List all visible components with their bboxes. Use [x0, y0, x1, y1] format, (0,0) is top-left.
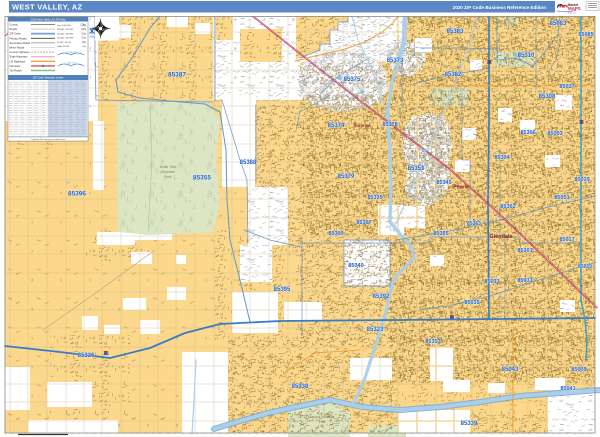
svg-text:Interstate: Interstate	[10, 64, 21, 68]
svg-text:85351: 85351	[408, 166, 425, 172]
svg-text:85017: 85017	[559, 237, 574, 243]
svg-text:County: County	[10, 23, 19, 27]
svg-text:* Indicates ZIP Code spans mul: * Indicates ZIP Code spans multiple area…	[30, 138, 65, 141]
svg-text:85019: 85019	[578, 264, 592, 270]
svg-text:100,000 - 249,999: 100,000 - 249,999	[57, 38, 74, 40]
svg-text:Roads: Roads	[10, 27, 18, 31]
svg-text:85053: 85053	[547, 131, 562, 137]
svg-text:85306: 85306	[520, 130, 535, 136]
svg-text:WEST VALLEY, AZ: WEST VALLEY, AZ	[12, 3, 82, 12]
svg-text:85387: 85387	[168, 71, 186, 78]
svg-text:85340: 85340	[348, 263, 363, 269]
svg-text:City: City	[82, 36, 87, 40]
svg-text:Toll Roads: Toll Roads	[10, 69, 23, 73]
svg-text:Mountain: Mountain	[161, 170, 175, 174]
svg-text:85375: 85375	[344, 77, 361, 83]
svg-text:85345: 85345	[436, 180, 451, 186]
svg-text:ZIP Code: ZIP Code	[10, 32, 21, 36]
svg-text:250,000 - 499,999: 250,000 - 499,999	[57, 33, 74, 35]
svg-text:maps.com: maps.com	[568, 13, 576, 15]
svg-text:85043: 85043	[502, 367, 519, 373]
svg-text:US Highways: US Highways	[10, 59, 26, 63]
svg-text:85323: 85323	[367, 327, 384, 333]
svg-text:85383: 85383	[447, 29, 464, 35]
svg-text:State Line: State Line	[66, 62, 76, 65]
svg-text:85382: 85382	[445, 72, 462, 78]
svg-text:County Line: County Line	[66, 51, 78, 54]
svg-text:85373: 85373	[387, 58, 404, 64]
svg-text:85339: 85339	[461, 421, 478, 427]
svg-text:Glendale: Glendale	[489, 234, 512, 240]
svg-text:Surprise: Surprise	[354, 123, 372, 128]
svg-text:85353: 85353	[425, 339, 440, 345]
svg-text:85304: 85304	[494, 155, 510, 161]
svg-text:85009: 85009	[571, 367, 586, 373]
svg-text:85041: 85041	[560, 386, 575, 392]
svg-text:85338: 85338	[292, 384, 309, 390]
svg-text:2020 West Valley, AZ ZIP Map: 2020 West Valley, AZ ZIP Map	[31, 18, 66, 22]
svg-text:85309: 85309	[328, 231, 343, 237]
svg-text:85035: 85035	[464, 300, 479, 306]
svg-text:White Tank: White Tank	[160, 165, 177, 169]
svg-text:85085: 85085	[578, 32, 593, 38]
svg-text:85307: 85307	[356, 220, 371, 226]
svg-text:85302: 85302	[500, 204, 515, 210]
svg-text:Secondary Roads: Secondary Roads	[10, 41, 31, 45]
svg-text:85374: 85374	[328, 123, 345, 129]
svg-text:85355: 85355	[193, 174, 211, 181]
svg-text:Peoria: Peoria	[453, 185, 469, 191]
svg-text:85027: 85027	[559, 84, 574, 90]
svg-text:85305: 85305	[433, 231, 448, 237]
svg-text:25,000 - 99,999: 25,000 - 99,999	[57, 42, 72, 44]
svg-text:85378: 85378	[382, 122, 397, 128]
svg-text:85031: 85031	[517, 278, 532, 284]
svg-text:85395: 85395	[274, 287, 291, 293]
svg-text:85051: 85051	[554, 195, 569, 201]
svg-text:85388: 85388	[240, 160, 257, 166]
svg-text:85308: 85308	[539, 94, 556, 100]
svg-text:Under 25,000: Under 25,000	[57, 46, 70, 48]
svg-text:State Highways: State Highways	[10, 55, 29, 59]
svg-text:County Highways: County Highways	[10, 50, 31, 54]
svg-text:85083: 85083	[550, 21, 567, 27]
svg-text:trips: trips	[90, 35, 96, 39]
svg-text:85396: 85396	[68, 190, 86, 197]
svg-text:Minor Roads: Minor Roads	[10, 46, 25, 50]
svg-text:Park: Park	[165, 175, 172, 179]
svg-text:85326: 85326	[78, 353, 95, 359]
svg-text:Park: Park	[319, 420, 326, 424]
svg-text:85301: 85301	[517, 248, 532, 254]
svg-text:85033: 85033	[484, 279, 499, 285]
svg-text:85029: 85029	[574, 177, 589, 183]
svg-text:Over 1,000,000: Over 1,000,000	[57, 25, 72, 27]
svg-text:85379: 85379	[338, 174, 355, 180]
svg-text:ZIP Code Selection Levels: ZIP Code Selection Levels	[33, 76, 64, 80]
svg-text:2020 ZIP Code Business Referen: 2020 ZIP Code Business Reference Edition	[453, 5, 547, 10]
svg-text:500,000 - 999,999: 500,000 - 999,999	[57, 29, 74, 31]
svg-text:85363: 85363	[467, 221, 481, 227]
svg-text:85335: 85335	[367, 195, 382, 201]
svg-text:City: City	[81, 31, 86, 35]
svg-text:Primary Roads: Primary Roads	[10, 36, 28, 40]
svg-text:Estrella Mountain: Estrella Mountain	[310, 415, 335, 419]
svg-text:85310: 85310	[518, 53, 535, 59]
svg-text:85392: 85392	[373, 294, 390, 300]
